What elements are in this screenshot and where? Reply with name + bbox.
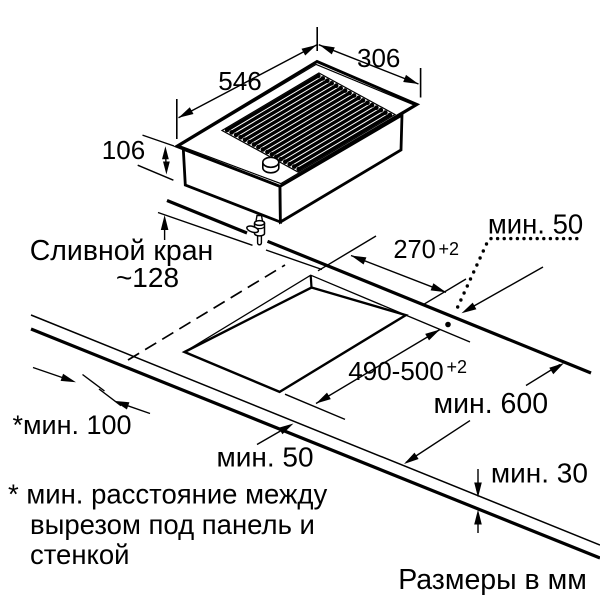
svg-text:106: 106 [102, 135, 145, 165]
svg-text:мин. 600: мин. 600 [433, 388, 548, 420]
svg-text:+2: +2 [439, 239, 460, 259]
svg-text:490-500: 490-500 [348, 356, 443, 386]
svg-text:306: 306 [357, 43, 400, 73]
svg-text:+2: +2 [447, 357, 468, 377]
svg-text:стенкой: стенкой [30, 539, 130, 570]
svg-text:270: 270 [393, 236, 436, 264]
svg-text:вырезом под панель и: вырезом под панель и [30, 509, 315, 540]
svg-text:* мин. расстояние между: * мин. расстояние между [8, 479, 327, 510]
svg-text:~128: ~128 [116, 262, 179, 293]
svg-text:мин. 50: мин. 50 [216, 442, 313, 473]
svg-text:мин. 30: мин. 30 [491, 458, 588, 489]
svg-text:*мин. 100: *мин. 100 [12, 410, 131, 440]
svg-text:мин. 50: мин. 50 [488, 209, 583, 240]
svg-text:Размеры в мм: Размеры в мм [398, 564, 587, 596]
svg-text:546: 546 [218, 66, 261, 96]
